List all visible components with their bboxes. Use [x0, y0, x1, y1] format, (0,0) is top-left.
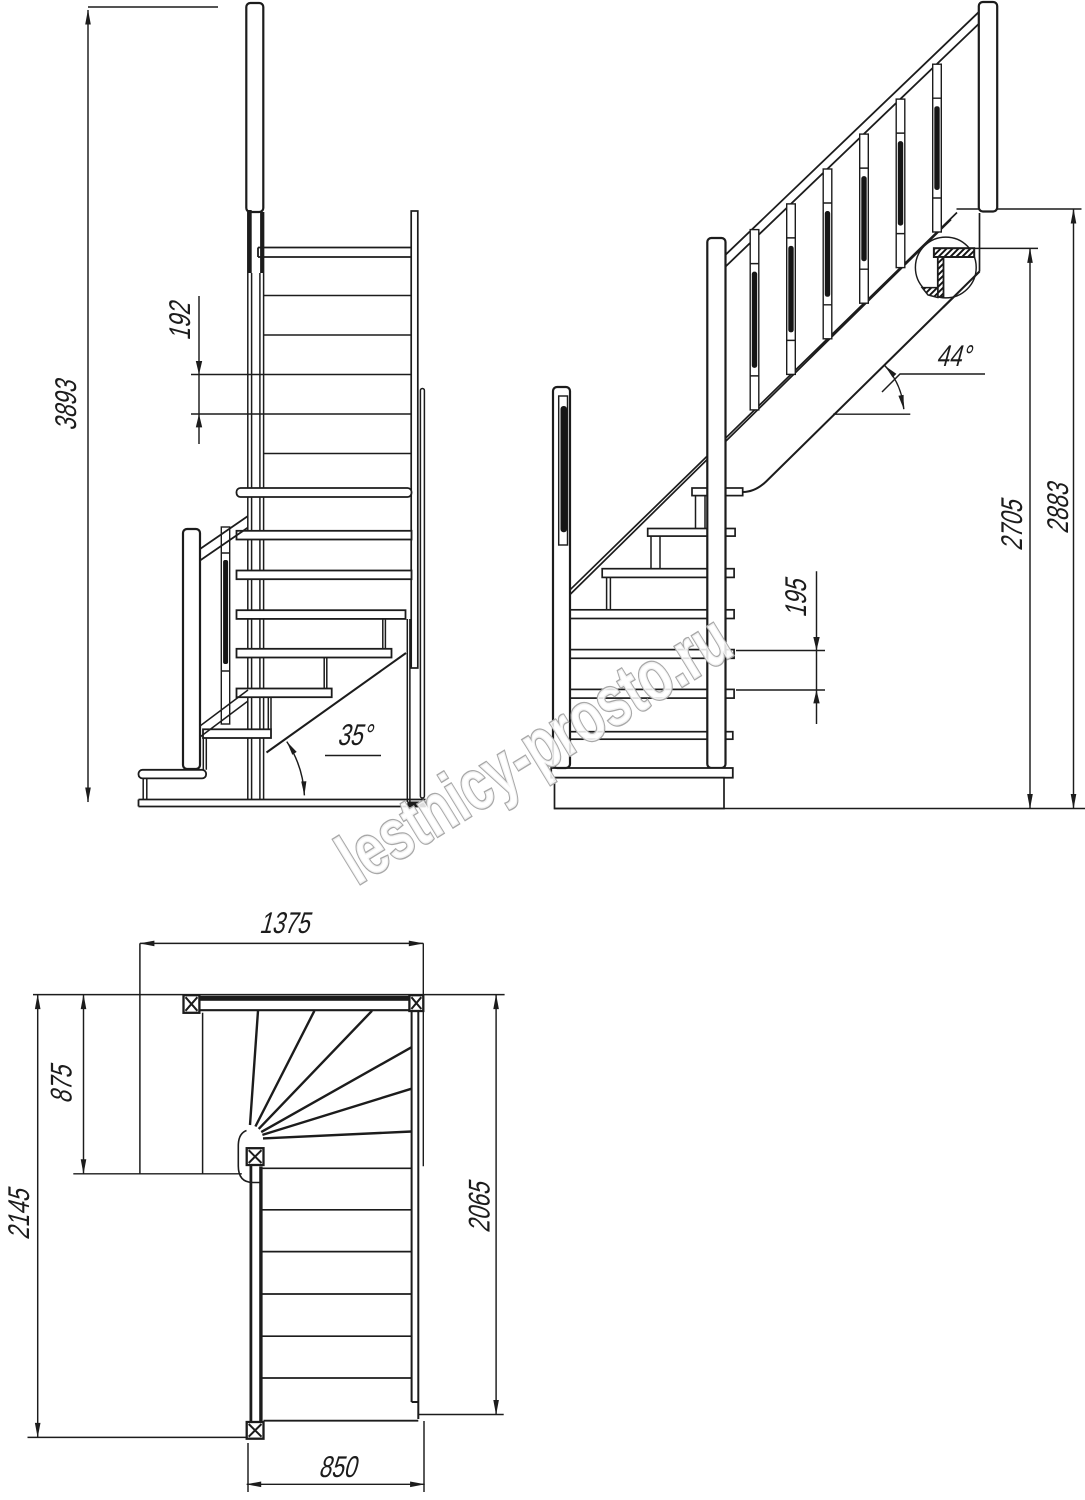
- svg-text:1375: 1375: [257, 905, 316, 939]
- svg-text:3893: 3893: [48, 374, 82, 433]
- svg-text:2065: 2065: [462, 1176, 496, 1235]
- svg-text:2705: 2705: [994, 494, 1028, 553]
- svg-text:2883: 2883: [1040, 477, 1074, 536]
- svg-text:2145: 2145: [1, 1183, 35, 1242]
